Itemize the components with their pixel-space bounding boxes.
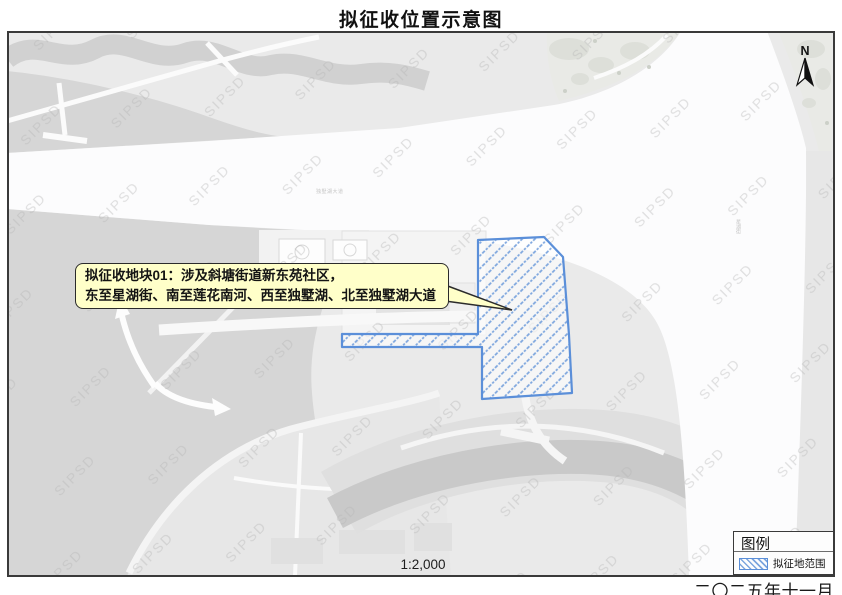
page-title: 拟征收位置示意图 <box>0 5 842 32</box>
page: 拟征收位置示意图 SIPSD SIPSD <box>0 0 842 595</box>
map-frame: SIPSD SIPSD <box>7 31 835 577</box>
parcel-callout: 拟征收地块01：涉及斜塘街道新东苑社区， 东至星湖街、南至莲花南河、西至独墅湖、… <box>75 263 449 309</box>
north-label: N <box>800 44 809 58</box>
callout-line-2: 东至星湖街、南至莲花南河、西至独墅湖、北至独墅湖大道 <box>85 286 439 306</box>
legend-item-label: 拟征地范围 <box>773 556 826 571</box>
callout-line-1: 拟征收地块01：涉及斜塘街道新东苑社区， <box>85 266 439 286</box>
hatch-swatch-icon <box>739 558 768 570</box>
legend-box: 图例 拟征地范围 <box>733 531 834 575</box>
legend-item: 拟征地范围 <box>734 552 833 571</box>
legend-title: 图例 <box>734 532 833 552</box>
date-label: 二〇二五年十一月 <box>694 577 834 595</box>
scale-label: 1:2,000 <box>378 557 468 572</box>
